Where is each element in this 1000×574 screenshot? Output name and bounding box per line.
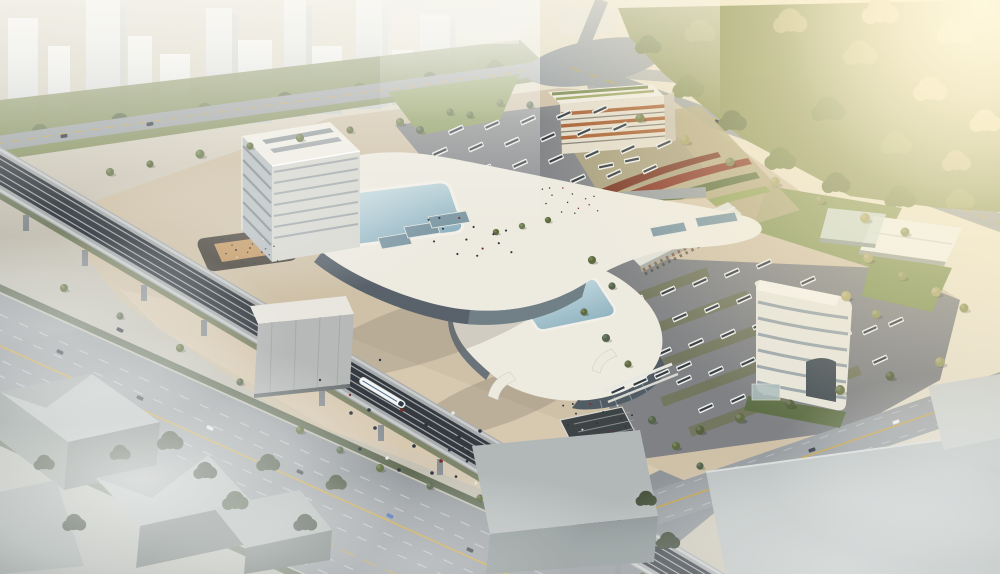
rendering-canvas: [0, 0, 1000, 574]
aerial-rendering: [0, 0, 1000, 574]
